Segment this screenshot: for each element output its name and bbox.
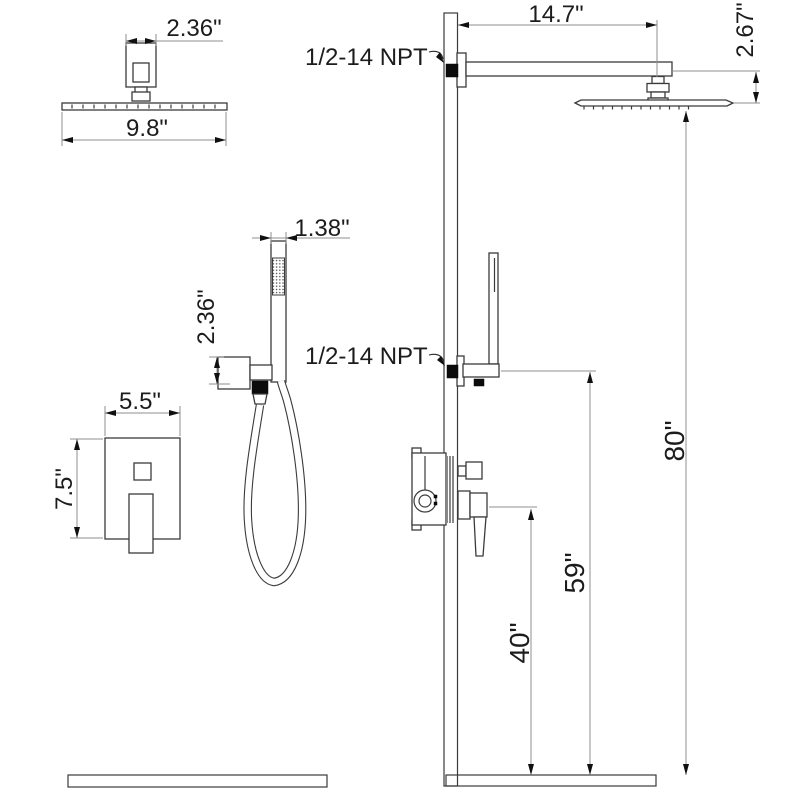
ball-joint-collar [652, 77, 664, 84]
dim-handshower-height: 59" [501, 371, 596, 775]
dim-head-hub-width: 2.36" [126, 15, 223, 46]
arm-npt-connector [446, 64, 458, 77]
npt-callout-top: 1/2-14 NPT [305, 44, 444, 71]
floor-section-left [68, 775, 327, 787]
arm-escutcheon [457, 53, 466, 87]
dim-label-wand-width: 1.38" [294, 215, 349, 242]
technical-drawing-canvas: 2.36" 9.8" 14.7" [0, 0, 800, 800]
dim-wand-width: 1.38" [252, 215, 350, 244]
hand-wand-side [489, 253, 498, 364]
showerhead-detail-view [62, 43, 227, 110]
ball-joint-nut [647, 84, 669, 93]
wall-section [444, 13, 458, 786]
diverter-button [134, 463, 151, 480]
dim-label-showerhead-height: 80" [659, 420, 690, 461]
diverter-button-side [466, 462, 482, 479]
holder-bracket [250, 365, 272, 380]
npt-label-mid: 1/2-14 NPT [305, 343, 428, 370]
dim-label-handshower-height: 59" [559, 552, 590, 593]
handle-lever-side [474, 517, 486, 556]
handle-base-side [458, 491, 470, 519]
dim-label-valve-height: 40" [504, 622, 535, 663]
dim-valve-height: 40" [489, 507, 537, 775]
wand-spray-face [273, 258, 285, 295]
dim-head-drop: 2.67" [672, 2, 760, 103]
dim-plate-height: 7.5" [51, 439, 103, 538]
dim-label-arm-length: 14.7" [528, 1, 583, 28]
rain-head-plate [575, 100, 733, 106]
head-mount-inner-square [133, 63, 149, 82]
dim-plate-width: 5.5" [105, 388, 180, 436]
shower-arm-assembly [446, 53, 733, 110]
ball-joint-lower [651, 92, 665, 98]
npt-callout-mid: 1/2-14 NPT [305, 343, 445, 370]
valve-handle [129, 494, 153, 553]
dim-label-head-width: 9.8" [126, 115, 168, 142]
diverter-stem-side [458, 466, 466, 476]
dim-label-head-hub-width: 2.36" [166, 15, 221, 42]
hose-coupling-ring [252, 381, 268, 394]
dim-label-holder-height: 2.36" [193, 289, 220, 344]
head-plate [62, 103, 227, 110]
holder-hose-port [474, 379, 484, 386]
dim-head-width: 9.8" [62, 112, 226, 146]
dim-showerhead-height: 80" [659, 111, 690, 775]
dim-label-plate-width: 5.5" [119, 388, 161, 415]
npt-label-top: 1/2-14 NPT [305, 44, 428, 71]
floor-section-right [446, 775, 656, 786]
head-swivel-collar [132, 92, 150, 101]
valve-side-view [412, 448, 487, 556]
valve-front-view [105, 438, 180, 553]
shower-system-drawing: 2.36" 9.8" 14.7" [0, 0, 800, 800]
dim-label-head-drop: 2.67" [732, 2, 759, 57]
shower-arm [466, 62, 672, 76]
rough-in-valve-body [412, 453, 446, 525]
holder-npt-connector [447, 365, 458, 378]
handshower-front-view [218, 241, 302, 582]
dim-label-plate-height: 7.5" [51, 468, 78, 510]
holder-arm-side [463, 364, 499, 377]
handshower-wall-view [447, 253, 499, 386]
handle-body-side [470, 493, 487, 517]
hose-nut [253, 394, 267, 404]
